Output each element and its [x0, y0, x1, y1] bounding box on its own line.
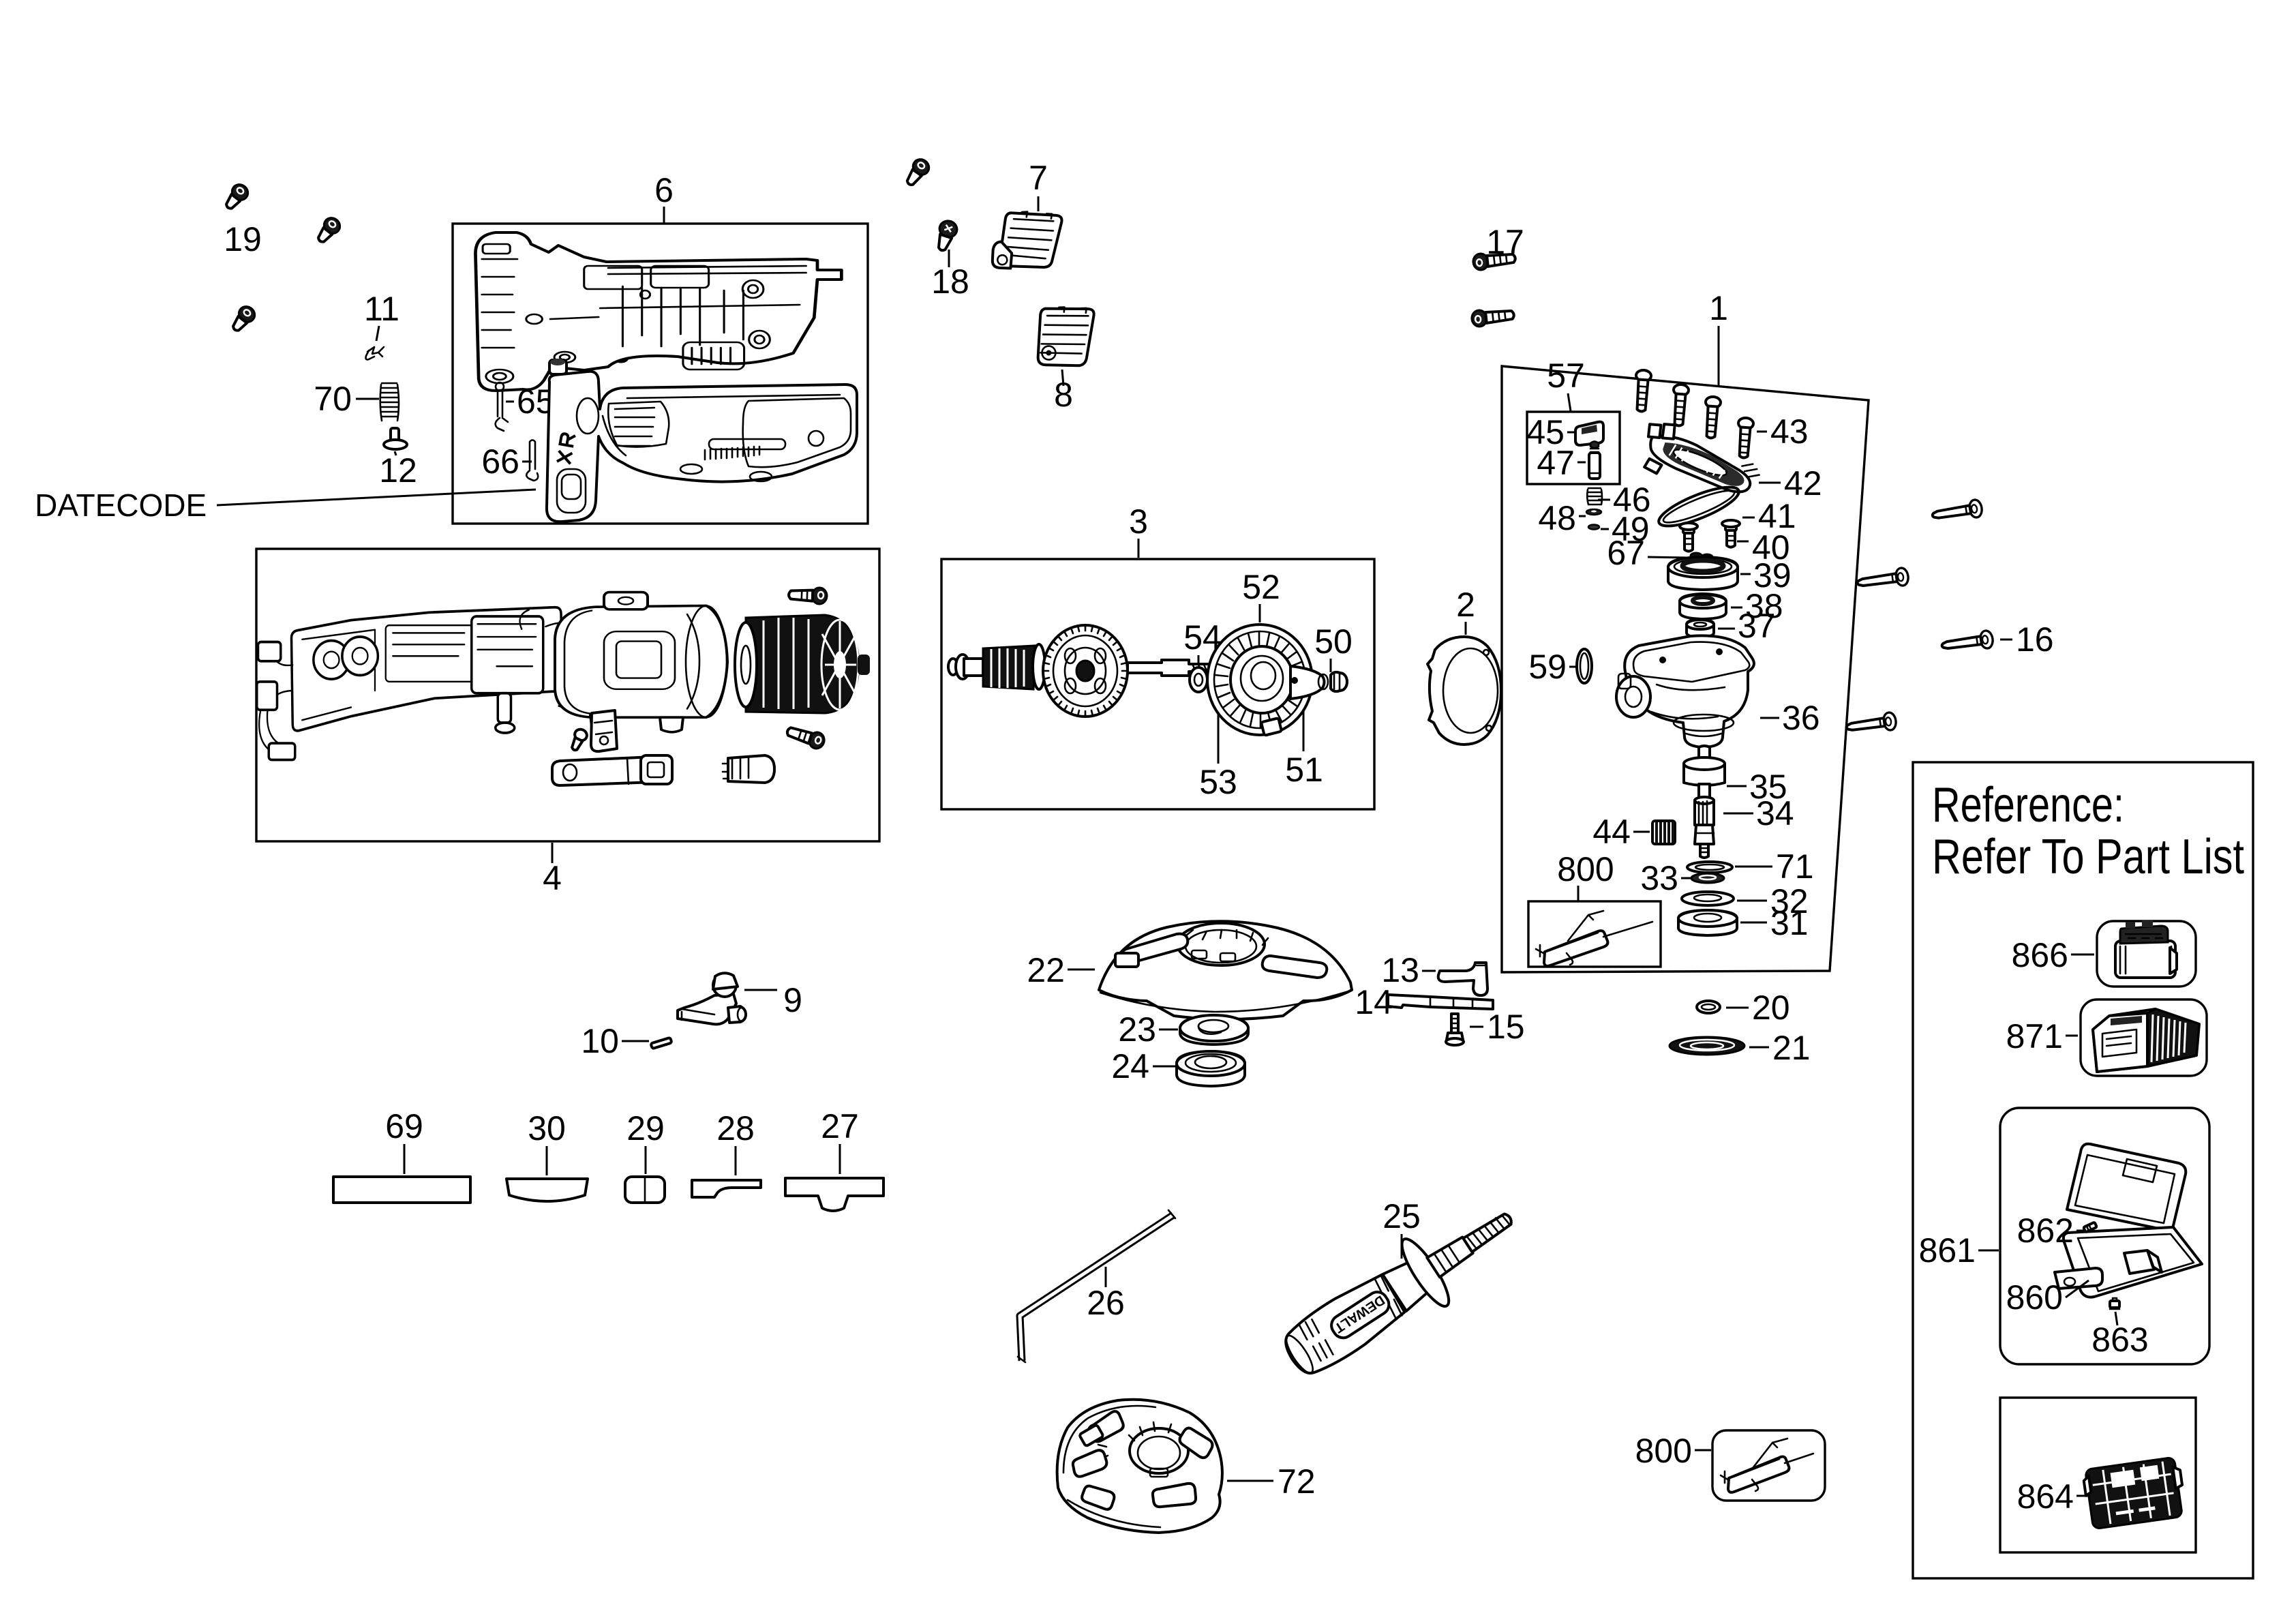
- svg-text:861: 861: [1919, 1231, 1976, 1269]
- svg-text:29: 29: [626, 1109, 665, 1147]
- svg-text:2: 2: [1456, 586, 1475, 624]
- svg-text:43: 43: [1770, 412, 1809, 451]
- svg-text:53: 53: [1199, 763, 1237, 801]
- svg-text:862: 862: [2017, 1212, 2074, 1250]
- svg-text:16: 16: [2016, 620, 2054, 659]
- svg-text:12: 12: [379, 451, 417, 490]
- svg-text:31: 31: [1770, 904, 1809, 942]
- svg-text:11: 11: [364, 290, 399, 328]
- svg-text:48: 48: [1538, 499, 1576, 537]
- svg-text:21: 21: [1772, 1029, 1811, 1067]
- svg-text:33: 33: [1640, 859, 1678, 897]
- svg-text:4: 4: [543, 859, 562, 897]
- svg-text:71: 71: [1776, 847, 1814, 886]
- svg-text:59: 59: [1528, 648, 1567, 686]
- svg-text:26: 26: [1087, 1284, 1125, 1322]
- svg-text:52: 52: [1242, 568, 1280, 606]
- svg-text:Reference:: Reference:: [1932, 778, 2124, 832]
- svg-text:800: 800: [1557, 850, 1614, 888]
- svg-text:47: 47: [1537, 444, 1575, 482]
- svg-text:866: 866: [2012, 936, 2068, 974]
- svg-text:57: 57: [1547, 357, 1585, 395]
- svg-text:3: 3: [1129, 502, 1148, 541]
- svg-text:51: 51: [1285, 751, 1323, 789]
- svg-text:23: 23: [1118, 1010, 1156, 1049]
- svg-text:DATECODE: DATECODE: [35, 487, 207, 523]
- svg-text:863: 863: [2091, 1321, 2148, 1359]
- svg-text:18: 18: [931, 262, 969, 301]
- svg-text:800: 800: [1635, 1432, 1692, 1470]
- svg-text:24: 24: [1111, 1047, 1149, 1085]
- svg-text:860: 860: [2006, 1278, 2063, 1317]
- svg-text:20: 20: [1752, 989, 1790, 1027]
- svg-text:1: 1: [1709, 289, 1728, 327]
- svg-text:69: 69: [385, 1107, 423, 1145]
- svg-text:Refer To Part List: Refer To Part List: [1932, 830, 2244, 884]
- svg-text:70: 70: [314, 380, 352, 418]
- svg-text:34: 34: [1756, 794, 1794, 832]
- svg-text:6: 6: [654, 171, 674, 209]
- svg-text:10: 10: [581, 1022, 619, 1060]
- svg-text:9: 9: [783, 981, 802, 1019]
- svg-text:22: 22: [1027, 951, 1065, 989]
- svg-text:19: 19: [224, 220, 262, 258]
- svg-text:36: 36: [1782, 699, 1820, 737]
- svg-text:25: 25: [1383, 1197, 1421, 1235]
- svg-text:864: 864: [2017, 1477, 2074, 1516]
- svg-text:30: 30: [528, 1109, 566, 1147]
- svg-text:66: 66: [481, 442, 519, 481]
- svg-text:27: 27: [821, 1107, 859, 1145]
- svg-text:871: 871: [2006, 1017, 2063, 1055]
- svg-text:72: 72: [1278, 1462, 1316, 1501]
- svg-text:28: 28: [716, 1109, 755, 1147]
- svg-text:44: 44: [1592, 813, 1631, 851]
- svg-text:15: 15: [1487, 1008, 1525, 1046]
- svg-text:7: 7: [1029, 159, 1048, 197]
- svg-text:50: 50: [1314, 622, 1353, 661]
- svg-text:37: 37: [1738, 607, 1776, 645]
- svg-text:67: 67: [1607, 534, 1645, 572]
